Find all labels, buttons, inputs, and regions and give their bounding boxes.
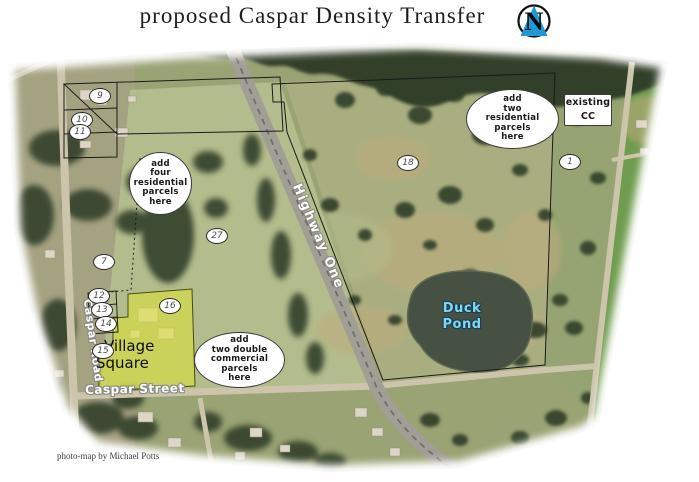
bubble-add-two-double-commercial: add two double commercial parcels here (194, 332, 285, 388)
north-arrow-logo: N (511, 1, 557, 43)
bubble-existing-cc: existing CC (564, 94, 612, 126)
parcel-marker-11: 11 (69, 124, 91, 140)
parcel-marker-1: 1 (559, 154, 581, 170)
logo-letter: N (525, 7, 544, 36)
parcel-marker-27: 27 (206, 228, 228, 244)
duck-pond-label: Duck Pond (427, 301, 497, 332)
parcel-marker-16: 16 (159, 298, 181, 314)
caspar-street-label: Caspar Street (85, 381, 185, 397)
parcel-marker-15: 15 (92, 343, 114, 359)
photo-credit: photo-map by Michael Potts (57, 451, 159, 461)
bubble-add-two-residential: add two residential parcels here (466, 89, 559, 149)
bubble-add-four-residential: add four residential parcels here (129, 152, 192, 215)
parcel-marker-18: 18 (397, 155, 419, 171)
photo-map-page: { "title": "proposed Caspar Density Tran… (0, 0, 699, 482)
parcel-marker-7: 7 (93, 254, 115, 270)
parcel-marker-14: 14 (95, 316, 117, 332)
parcel-marker-9: 9 (89, 88, 111, 104)
aerial-photo (0, 0, 699, 482)
